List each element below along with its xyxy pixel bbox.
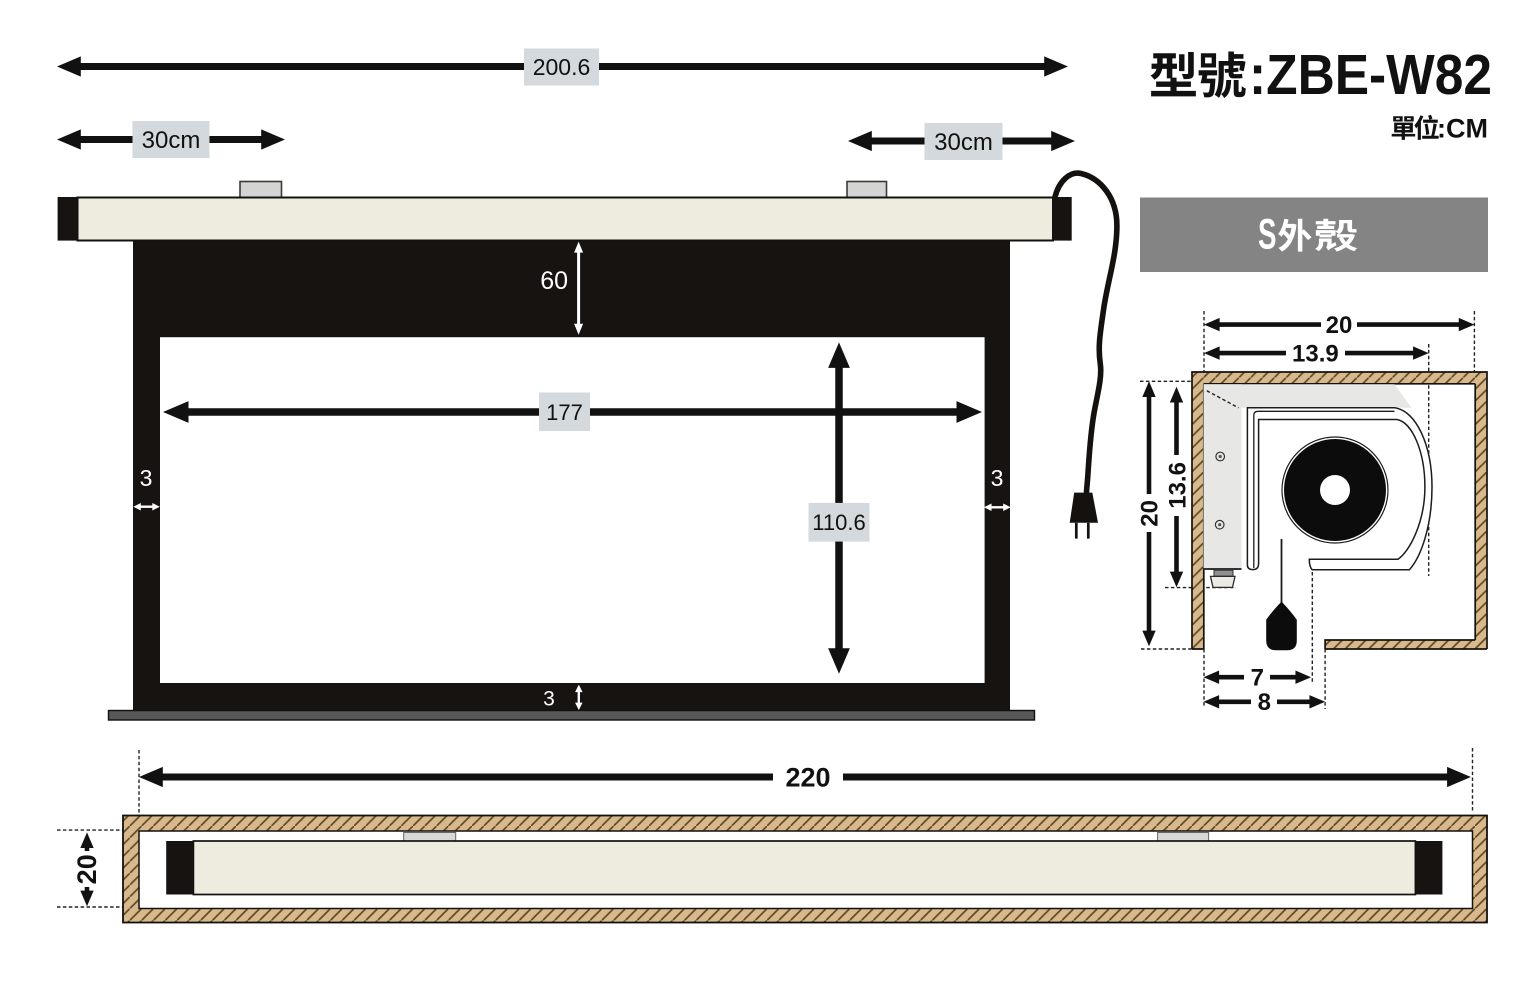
- svg-text:220: 220: [785, 763, 830, 793]
- svg-text:3: 3: [543, 688, 555, 711]
- svg-text:3: 3: [140, 465, 153, 491]
- svg-text:20: 20: [72, 854, 102, 884]
- svg-text::ZBE-W82: :ZBE-W82: [1249, 43, 1492, 106]
- svg-text:30cm: 30cm: [142, 127, 201, 154]
- svg-text:3: 3: [991, 465, 1004, 491]
- svg-text:110.6: 110.6: [812, 510, 865, 535]
- svg-text:60: 60: [540, 267, 568, 295]
- svg-text:8: 8: [1258, 689, 1271, 716]
- svg-text:20: 20: [1326, 312, 1353, 339]
- svg-text:S: S: [1258, 212, 1277, 259]
- svg-text::CM: :CM: [1437, 114, 1488, 144]
- svg-text:13.6: 13.6: [1164, 462, 1191, 509]
- svg-text:7: 7: [1251, 665, 1264, 692]
- svg-text:177: 177: [546, 400, 583, 425]
- svg-text:20: 20: [1136, 500, 1163, 527]
- svg-text:13.9: 13.9: [1292, 341, 1339, 368]
- svg-text:200.6: 200.6: [533, 54, 591, 80]
- svg-text:30cm: 30cm: [934, 129, 993, 156]
